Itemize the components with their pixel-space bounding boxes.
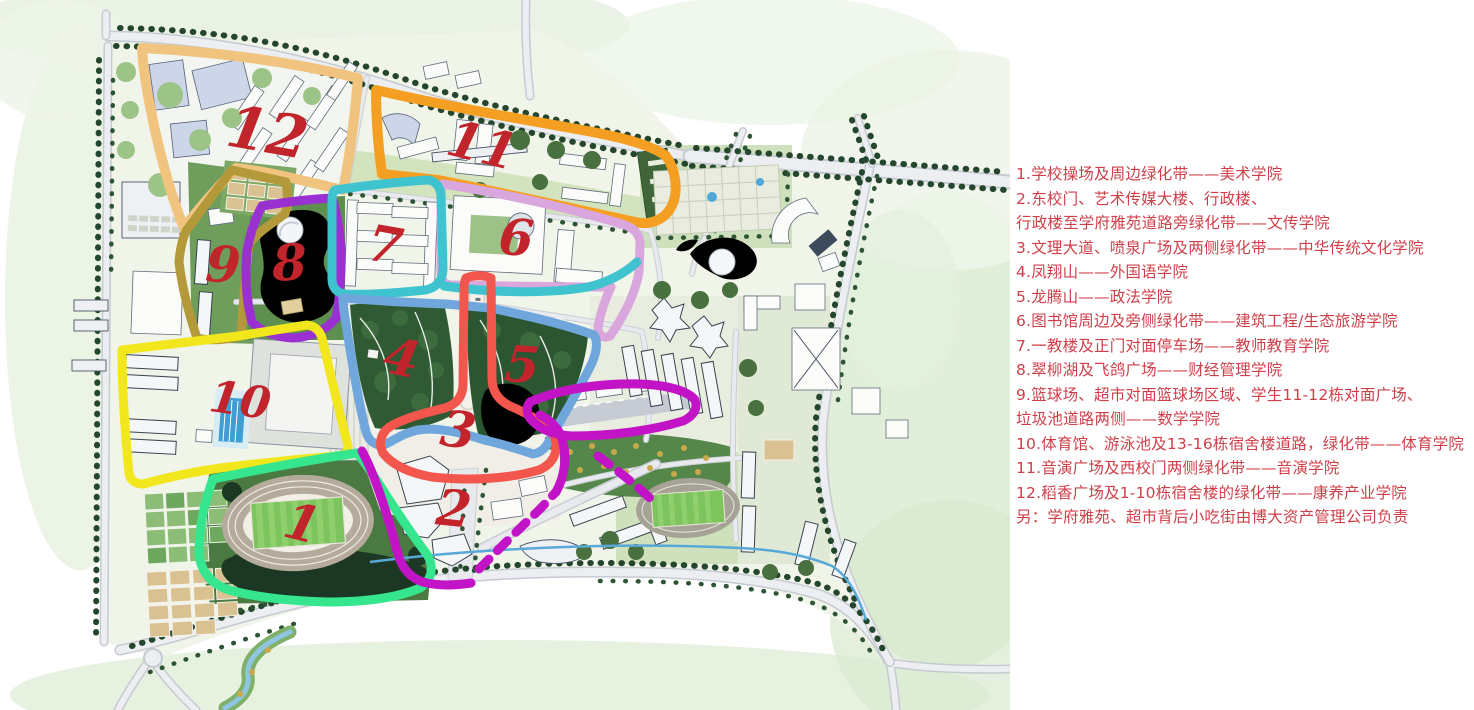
legend-line-8: 7.一教楼及正门对面停车场——教师教育学院 (1016, 334, 1470, 359)
legend: 1.学校操场及周边绿化带——美术学院 2.东校门、艺术传媒大楼、行政楼、 行政楼… (1016, 162, 1470, 530)
legend-line-9: 8.翠柳湖及飞鸽广场——财经管理学院 (1016, 358, 1470, 383)
legend-line-2: 2.东校门、艺术传媒大楼、行政楼、 (1016, 187, 1470, 212)
legend-line-13: 11.音演广场及西校门两侧绿化带——音演学院 (1016, 456, 1470, 481)
zone-5-number: 5 (503, 334, 542, 395)
zone-9-number: 9 (204, 234, 243, 295)
legend-line-4: 3.文理大道、喷泉广场及两侧绿化带——中华传统文化学院 (1016, 236, 1470, 261)
zone-6-number: 6 (497, 207, 536, 268)
legend-line-11: 垃圾池道路两侧——数学学院 (1016, 407, 1470, 432)
zone-12-number: 12 (222, 92, 313, 173)
legend-line-3: 行政楼至学府雅苑道路旁绿化带——文传学院 (1016, 211, 1470, 236)
legend-line-6: 5.龙腾山——政法学院 (1016, 285, 1470, 310)
zone-2-number: 2 (432, 477, 474, 539)
legend-line-10: 9.篮球场、超市对面篮球场区域、学生11-12栋对面广场、 (1016, 383, 1470, 408)
legend-line-5: 4.凤翔山——外国语学院 (1016, 260, 1470, 285)
legend-line-1: 1.学校操场及周边绿化带——美术学院 (1016, 162, 1470, 187)
legend-line-12: 10.体育馆、游泳池及13-16栋宿舍楼道路，绿化带——体育学院 (1016, 432, 1470, 457)
legend-line-15: 另：学府雅苑、超市背后小吃街由博大资产管理公司负责 (1016, 505, 1470, 530)
zone-10-number: 10 (206, 371, 274, 430)
zone-8-number: 8 (270, 232, 308, 292)
legend-line-14: 12.稻香广场及1-10栋宿舍楼的绿化带——康养产业学院 (1016, 481, 1470, 506)
campus-plan-map: 12 11 9 8 7 6 4 5 3 10 1 2 (0, 0, 1010, 710)
legend-line-7: 6.图书馆周边及旁侧绿化带——建筑工程/生态旅游学院 (1016, 309, 1470, 334)
